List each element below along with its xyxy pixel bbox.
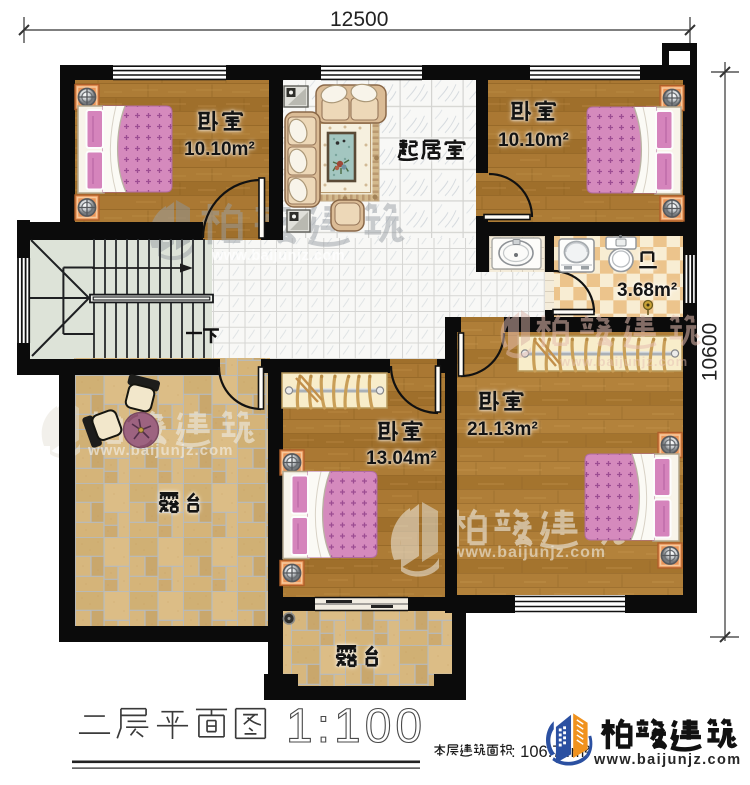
svg-text:10600: 10600 (699, 323, 722, 381)
svg-text:www.baijunjz.com: www.baijunjz.com (451, 544, 606, 561)
svg-text:12500: 12500 (330, 8, 388, 31)
svg-text:3.68m²: 3.68m² (617, 280, 677, 301)
svg-text:www.baijunjz.com: www.baijunjz.com (593, 752, 742, 768)
svg-text:www.baijunjz.com: www.baijunjz.com (559, 354, 688, 369)
svg-text:1:100: 1:100 (286, 700, 426, 753)
svg-text:21.13m²: 21.13m² (467, 419, 538, 440)
svg-text:www.baijunjz.com: www.baijunjz.com (211, 248, 345, 264)
svg-text:www.baijunjz.com: www.baijunjz.com (87, 442, 233, 459)
svg-text:10.10m²: 10.10m² (498, 130, 569, 151)
svg-text:13.04m²: 13.04m² (366, 448, 437, 469)
svg-text:10.10m²: 10.10m² (184, 139, 255, 160)
